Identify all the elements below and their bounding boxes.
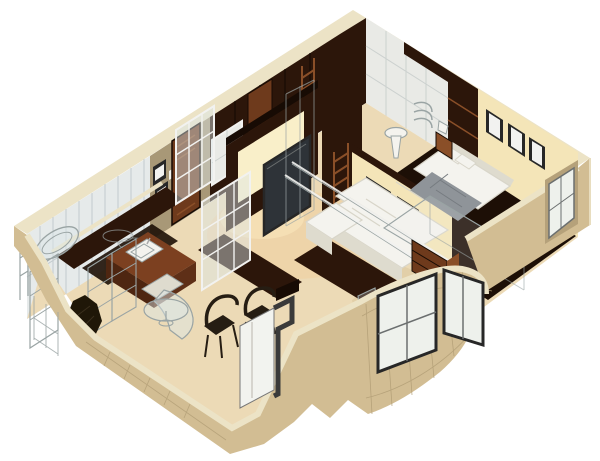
dining-door-panel [240,308,274,408]
render-canvas [0,0,600,461]
apartment-3d-render [0,0,600,461]
